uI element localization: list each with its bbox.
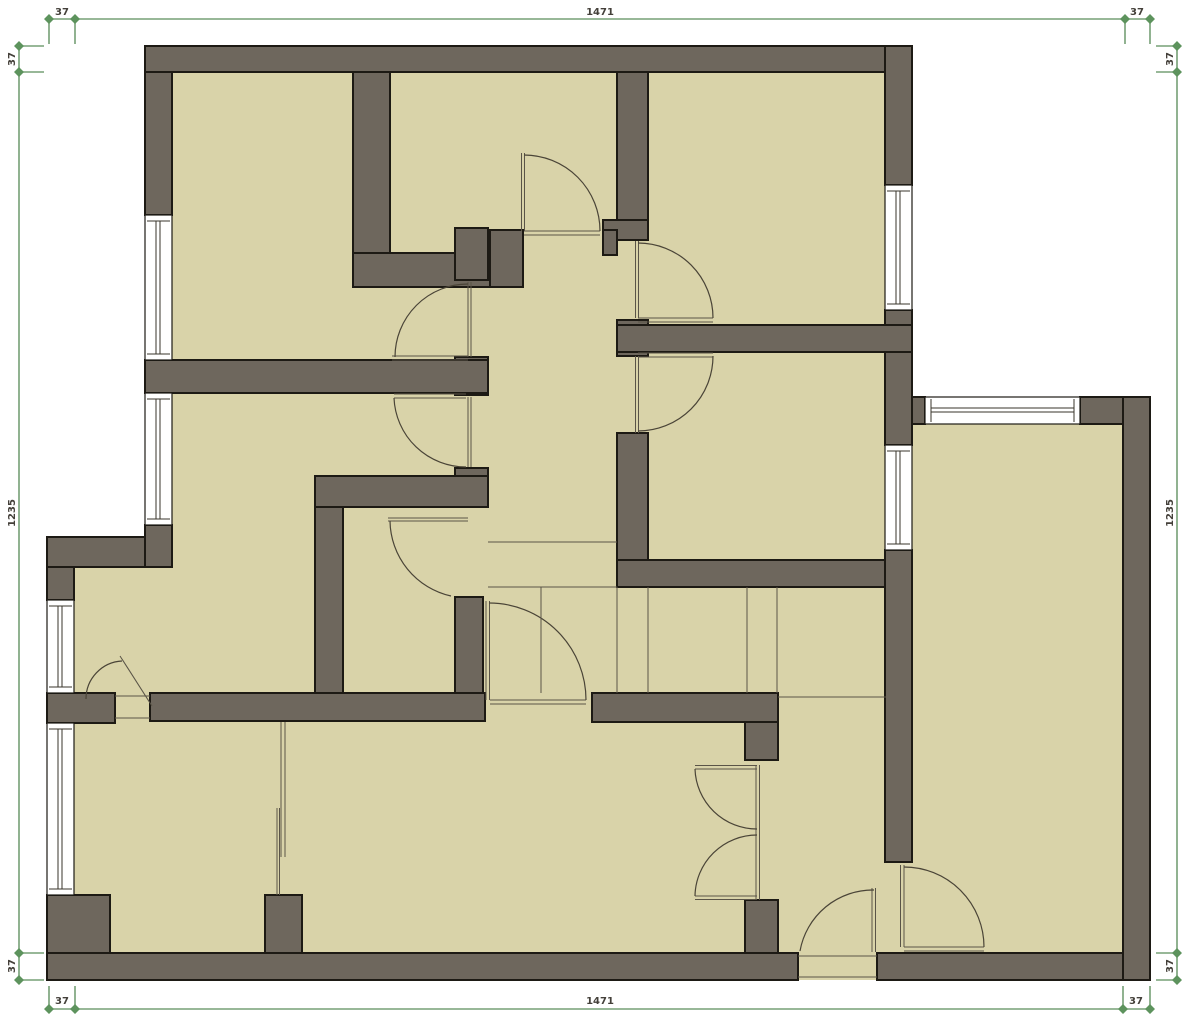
dimension-label: 37 (55, 7, 69, 18)
wall-segment[interactable] (145, 525, 172, 567)
wall-segment[interactable] (490, 230, 523, 287)
wall-segment[interactable] (315, 476, 488, 507)
wall-segment[interactable] (745, 900, 778, 953)
wall-segment[interactable] (617, 325, 912, 352)
wall-segment[interactable] (47, 895, 110, 953)
wall-segment[interactable] (455, 228, 488, 280)
floor-plan-canvas[interactable]: 37 1471 37 37 1471 37 37 1235 37 37 1235… (0, 0, 1200, 1029)
window[interactable] (145, 215, 172, 360)
window[interactable] (145, 393, 172, 525)
dimension-label: 1235 (1165, 499, 1176, 527)
wall-segment[interactable] (603, 230, 617, 255)
wall-segment[interactable] (877, 953, 1150, 980)
wall-segment[interactable] (315, 507, 343, 693)
wall-segment[interactable] (617, 560, 885, 587)
dimension-line-right: 37 1235 37 (1156, 41, 1182, 985)
wall-segment[interactable] (592, 693, 778, 722)
wall-segment[interactable] (1123, 397, 1150, 980)
window[interactable] (47, 723, 74, 895)
dimension-label: 1471 (586, 996, 614, 1007)
dimension-label: 37 (1165, 52, 1176, 66)
floor-area[interactable] (47, 46, 1150, 980)
wall-segment[interactable] (47, 953, 798, 980)
wall-segment[interactable] (745, 722, 778, 760)
wall-segment[interactable] (145, 46, 912, 72)
wall-segment[interactable] (150, 693, 485, 721)
dimension-label: 1235 (7, 499, 18, 527)
wall-segment[interactable] (145, 72, 172, 215)
window[interactable] (47, 600, 74, 693)
dimension-line-top: 37 1471 37 (44, 7, 1155, 44)
dimension-label: 37 (1165, 959, 1176, 973)
wall-segment[interactable] (885, 46, 912, 185)
wall-segment[interactable] (885, 550, 912, 862)
window[interactable] (925, 397, 1080, 424)
wall-segment[interactable] (265, 895, 302, 953)
wall-segment[interactable] (47, 567, 74, 600)
dimension-label: 1471 (586, 7, 614, 18)
window[interactable] (885, 185, 912, 310)
dimension-label: 37 (7, 52, 18, 66)
wall-segment[interactable] (912, 397, 925, 424)
dimension-line-bottom: 37 1471 37 (44, 986, 1155, 1014)
wall-segment[interactable] (617, 72, 648, 220)
wall-segment[interactable] (47, 537, 145, 567)
wall-segment[interactable] (47, 693, 115, 723)
window[interactable] (885, 445, 912, 550)
dimension-line-left: 37 1235 37 (7, 41, 44, 985)
wall-segment[interactable] (1080, 397, 1123, 424)
dimension-label: 37 (55, 996, 69, 1007)
dimension-label: 37 (1129, 996, 1143, 1007)
dimension-label: 37 (7, 959, 18, 973)
wall-segment[interactable] (145, 360, 488, 393)
wall-segment[interactable] (353, 72, 390, 253)
wall-segment[interactable] (617, 433, 648, 560)
dimension-label: 37 (1130, 7, 1144, 18)
floor-plan-stage: 37 1471 37 37 1471 37 37 1235 37 37 1235… (0, 0, 1200, 1029)
